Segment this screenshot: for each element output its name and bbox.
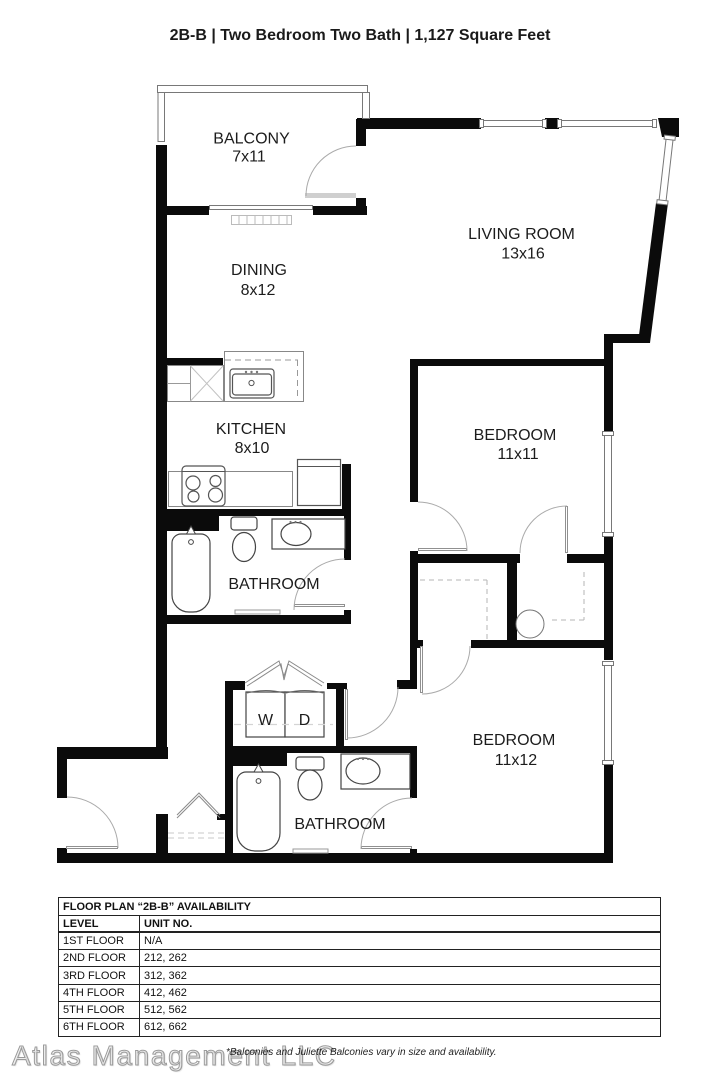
svg-text:BALCONY: BALCONY xyxy=(213,131,290,148)
svg-text:BATHROOM: BATHROOM xyxy=(294,816,385,833)
svg-text:7x11: 7x11 xyxy=(232,149,266,166)
svg-text:8x12: 8x12 xyxy=(241,282,276,299)
svg-text:BEDROOM: BEDROOM xyxy=(473,732,556,749)
svg-text:13x16: 13x16 xyxy=(501,246,545,263)
svg-text:W: W xyxy=(258,712,274,729)
svg-text:11x11: 11x11 xyxy=(497,446,538,463)
svg-text:KITCHEN: KITCHEN xyxy=(216,421,286,438)
svg-text:BEDROOM: BEDROOM xyxy=(474,427,557,444)
svg-text:LIVING ROOM: LIVING ROOM xyxy=(468,226,575,243)
svg-text:8x10: 8x10 xyxy=(235,440,270,457)
svg-text:D: D xyxy=(299,712,311,729)
svg-text:DINING: DINING xyxy=(231,262,287,279)
svg-text:11x12: 11x12 xyxy=(495,752,538,769)
svg-text:BATHROOM: BATHROOM xyxy=(228,576,319,593)
